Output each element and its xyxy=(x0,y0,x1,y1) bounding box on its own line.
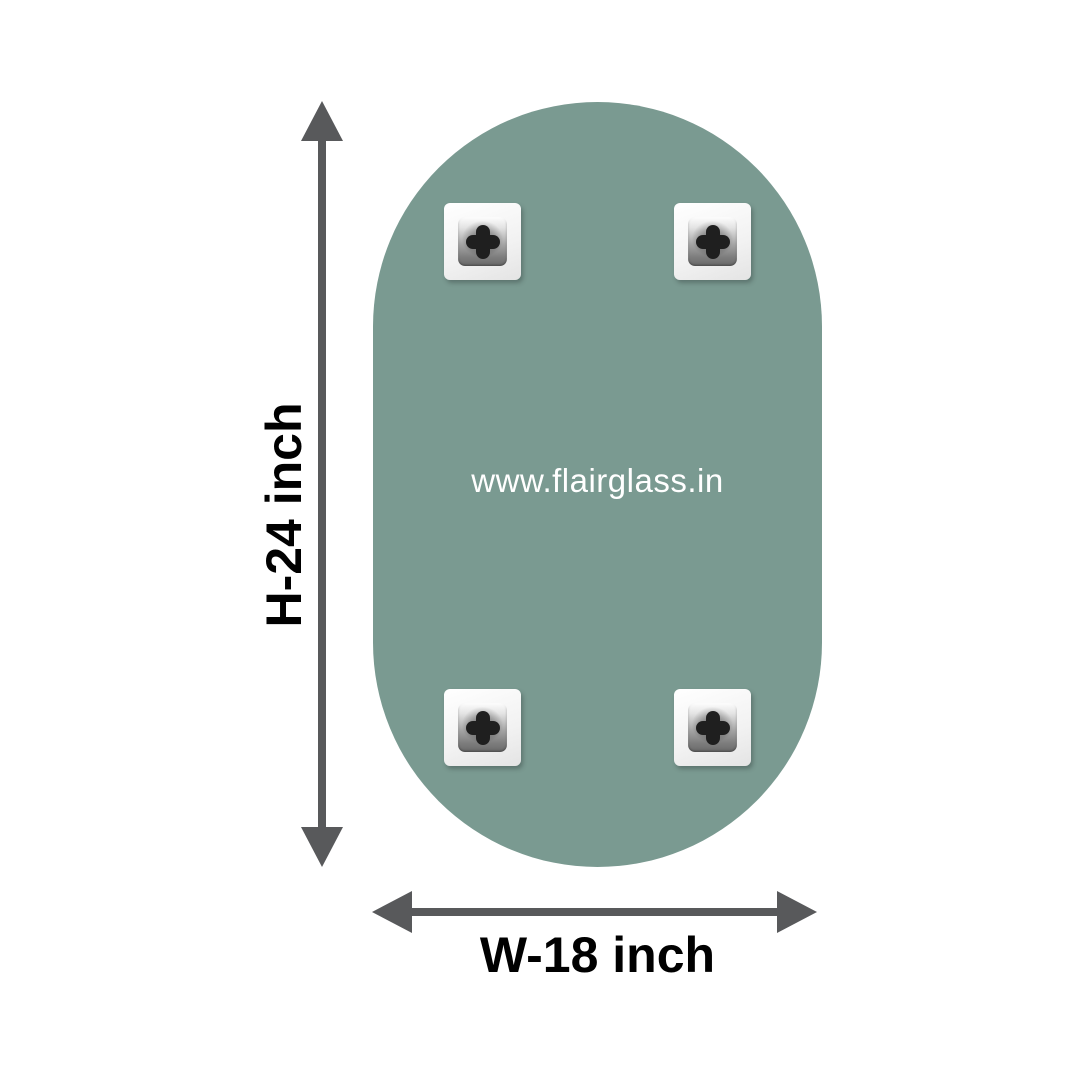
mounting-clip-top-left xyxy=(444,203,521,280)
clip-plate xyxy=(458,703,507,752)
product-dimension-diagram: www.flairglass.in H-24 inch xyxy=(0,0,1080,1080)
screw-cross-icon xyxy=(688,217,737,266)
clip-plate xyxy=(688,703,737,752)
double-arrow-vertical-icon xyxy=(318,136,326,832)
clip-plate xyxy=(688,217,737,266)
width-dimension-label: W-18 inch xyxy=(373,926,822,984)
mounting-clip-bottom-left xyxy=(444,689,521,766)
clip-plate xyxy=(458,217,507,266)
screw-cross-icon xyxy=(458,217,507,266)
arrow-down-icon xyxy=(301,827,343,867)
mounting-clip-bottom-right xyxy=(674,689,751,766)
screw-cross-icon xyxy=(458,703,507,752)
mounting-clip-top-right xyxy=(674,203,751,280)
glass-panel: www.flairglass.in xyxy=(373,102,822,867)
watermark-text: www.flairglass.in xyxy=(373,462,822,500)
height-dimension-label: H-24 inch xyxy=(254,365,314,665)
screw-cross-icon xyxy=(688,703,737,752)
double-arrow-horizontal-icon xyxy=(405,908,780,916)
arrow-up-icon xyxy=(301,101,343,141)
